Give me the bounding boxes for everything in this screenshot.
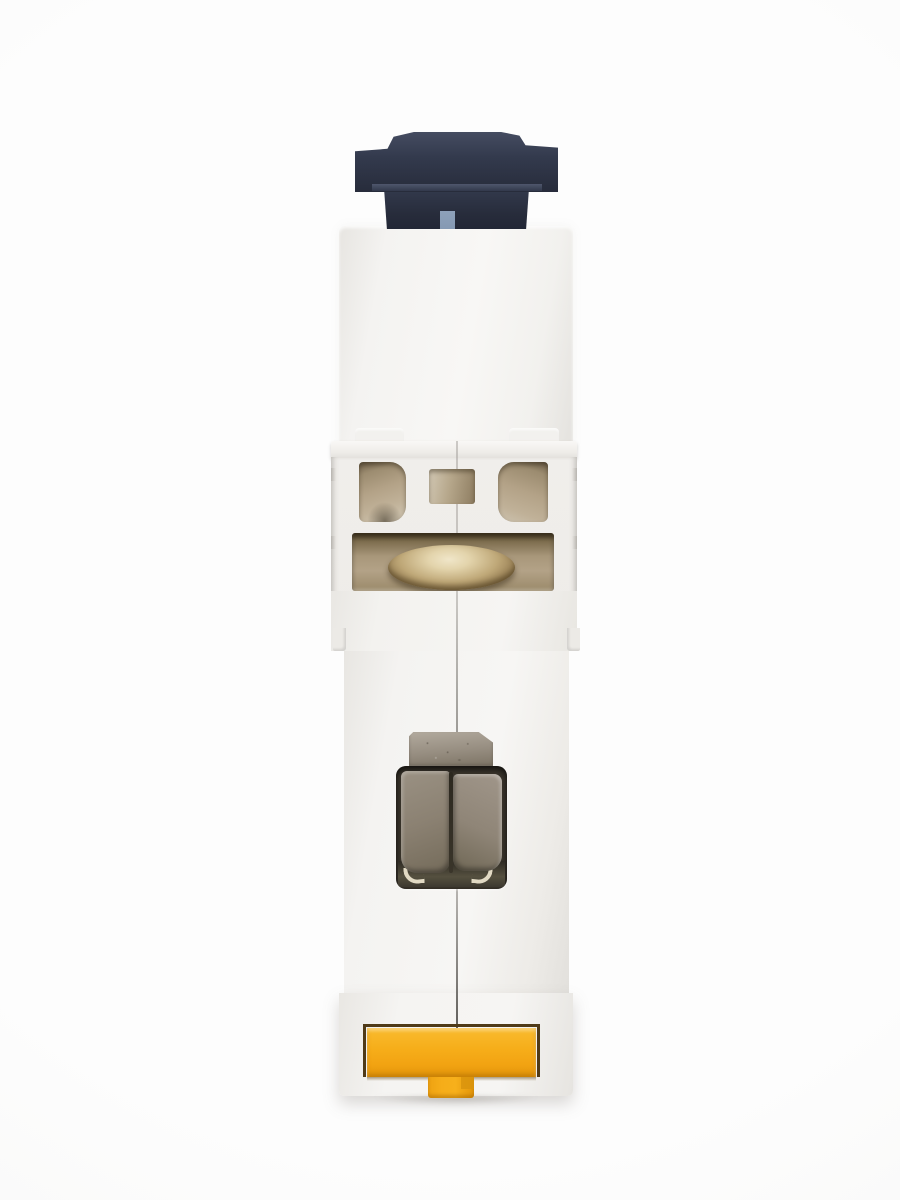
- side-notch: [572, 468, 577, 481]
- vent-opening-right: [498, 462, 548, 522]
- vent-opening-center: [429, 469, 475, 504]
- toggle-indicator: [440, 211, 455, 229]
- side-notch: [331, 468, 336, 481]
- toggle-switch: [355, 132, 558, 192]
- housing-band: [331, 591, 577, 651]
- toggle-stem: [384, 188, 529, 229]
- side-notch: [331, 536, 336, 549]
- side-notch: [572, 536, 577, 549]
- step-foot-right: [567, 628, 580, 651]
- clamp-plate-left: [401, 771, 450, 873]
- clamp-plate-right: [453, 774, 502, 871]
- terminal-window: [396, 766, 507, 889]
- step-foot-left: [333, 628, 346, 651]
- clamp-seam: [449, 772, 453, 873]
- upper-housing: [339, 226, 573, 447]
- din-clip: [367, 1028, 536, 1077]
- din-clip-stem-notch: [461, 1077, 474, 1089]
- metal-contact-tab: [409, 732, 493, 767]
- vent-opening-left: [359, 462, 406, 522]
- product-photo: [0, 0, 900, 1200]
- toggle-ridge: [372, 184, 542, 191]
- housing-seam-mid: [456, 591, 458, 732]
- terminal-screw: [388, 545, 515, 590]
- housing-seam-lower: [456, 889, 458, 1028]
